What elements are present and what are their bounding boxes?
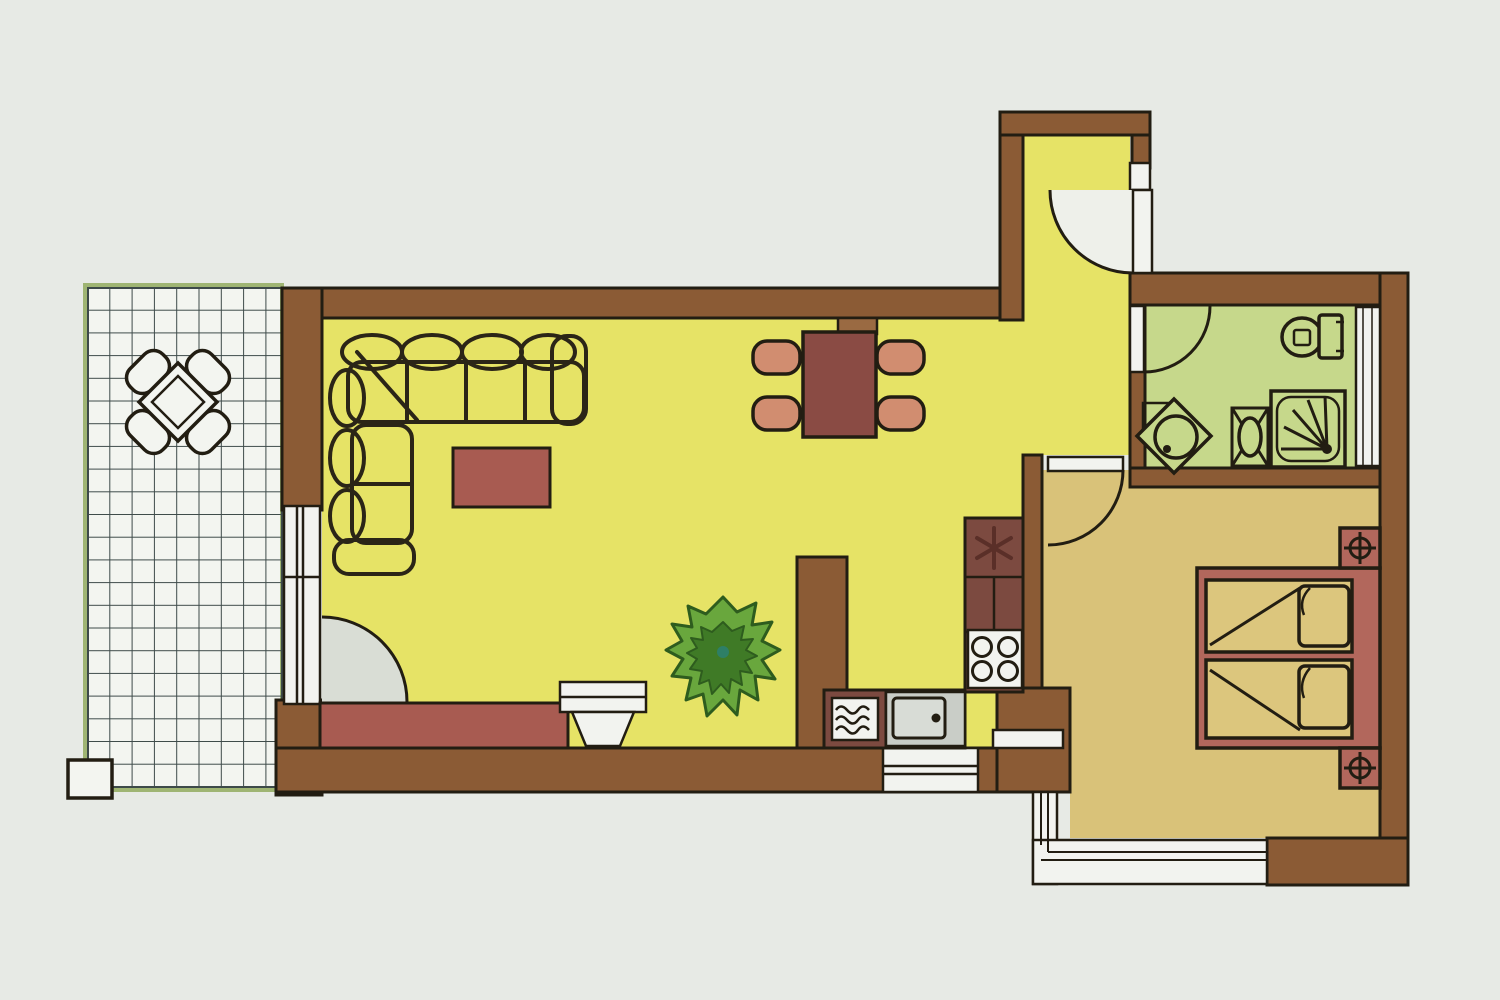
bedroom-window-bottom (1033, 840, 1267, 884)
wall-right-outer (1380, 273, 1408, 885)
bathroom-door-leaf (1130, 306, 1144, 372)
wall-bedroom-bottom-right (1267, 838, 1408, 885)
entrance-door-leaf (1133, 190, 1152, 273)
pillow (1299, 666, 1349, 728)
stove (968, 630, 1022, 688)
floor-plan (0, 0, 1500, 1000)
coffee-table (453, 448, 550, 507)
patio-set (121, 345, 235, 459)
bed-mattress-top (1206, 580, 1352, 652)
pillow (1299, 586, 1349, 646)
washing-machine (824, 690, 886, 748)
pedestal-washbasin (1232, 408, 1268, 466)
terrace (68, 285, 282, 798)
sideboard (320, 703, 568, 748)
dining-chair (753, 397, 800, 430)
shower (1271, 391, 1345, 467)
washbasin-bowl (1239, 418, 1261, 456)
toilet-bowl (1282, 318, 1322, 356)
sink-drain (932, 714, 941, 723)
plant-pot-center (717, 646, 729, 658)
terrace-tile-grid (88, 288, 282, 787)
bedroom-door-leaf (1048, 457, 1123, 471)
wall-left-upper (282, 288, 322, 510)
shower-drain (1322, 444, 1332, 454)
wall-hall-left (1000, 112, 1023, 320)
dining-chair (877, 341, 924, 374)
wall-bathroom-bedroom-divider (1130, 468, 1380, 487)
corner-basin-drain (1163, 445, 1171, 453)
wall-hall-top (1000, 112, 1150, 135)
dining-chair (877, 397, 924, 430)
bedroom (1197, 528, 1380, 788)
toilet (1282, 315, 1344, 358)
bed-mattress-bottom (1206, 660, 1352, 738)
nightstand-top (1340, 528, 1380, 568)
dining-table (803, 332, 876, 437)
dining-chair (753, 341, 800, 374)
terrace-post (68, 760, 112, 798)
kitchen-window (883, 748, 978, 792)
entrance-door-frame (1130, 163, 1150, 190)
pass-through-window (993, 730, 1063, 748)
corner-basin-bowl (1155, 416, 1197, 458)
bathroom-window (1356, 307, 1380, 466)
wall-bathroom-top (1130, 273, 1408, 305)
nightstand-bottom (1340, 748, 1380, 788)
kitchen-sink (886, 692, 965, 746)
floor-plan-canvas (0, 0, 1500, 1000)
wall-top (282, 288, 1023, 318)
